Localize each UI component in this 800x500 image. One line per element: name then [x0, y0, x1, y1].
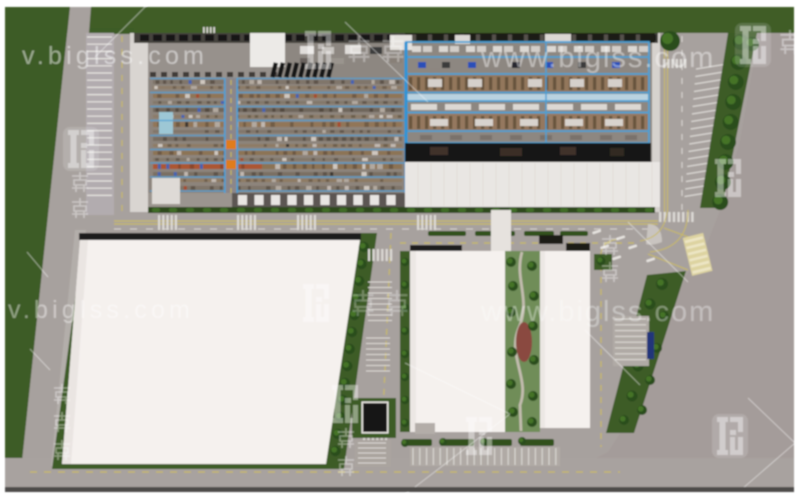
svg-text:www.biglss.com: www.biglss.com — [480, 42, 715, 74]
svg-text:v.biglss.com: v.biglss.com — [22, 42, 208, 70]
svg-text:v.biglss.com: v.biglss.com — [8, 296, 194, 324]
svg-text:www.biglss.com: www.biglss.com — [480, 296, 715, 328]
